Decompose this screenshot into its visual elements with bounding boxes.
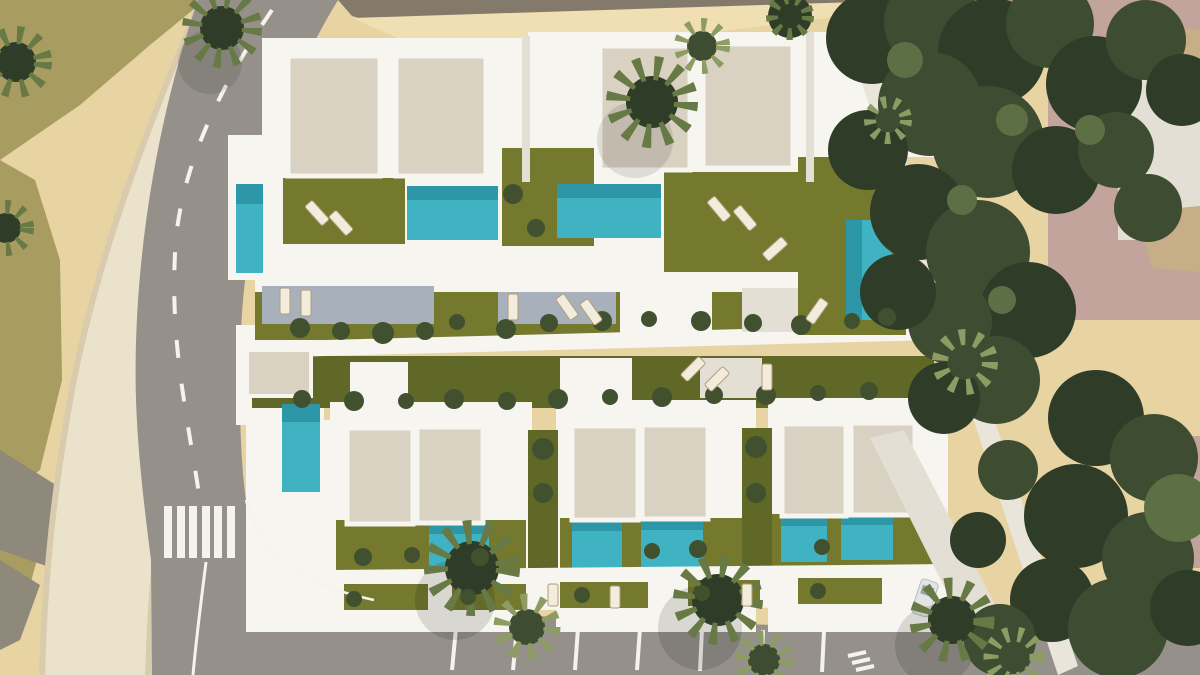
shrub xyxy=(372,322,394,344)
shrub xyxy=(744,314,762,332)
shrub xyxy=(844,313,860,329)
shrub xyxy=(746,483,766,503)
shrub xyxy=(694,585,710,601)
sun-lounger xyxy=(301,290,311,316)
shrub xyxy=(532,438,554,460)
shrub xyxy=(498,392,516,410)
sun-lounger xyxy=(762,364,772,390)
tree-canopy xyxy=(1068,578,1168,675)
shrub xyxy=(346,591,362,607)
pool-villa-c-deep xyxy=(846,220,862,320)
tree-canopy xyxy=(1114,174,1182,242)
shrub xyxy=(496,319,516,339)
shrub xyxy=(548,389,568,409)
party-wall-ab xyxy=(522,36,530,182)
shrub xyxy=(860,382,878,400)
sun-lounger xyxy=(548,584,558,606)
palm-core xyxy=(445,541,499,595)
shrub xyxy=(293,390,311,408)
garden-strip-3 xyxy=(560,582,648,608)
crosswalk-stripe-2 xyxy=(177,506,185,558)
shrub xyxy=(691,311,711,331)
shrub xyxy=(344,391,364,411)
shrub xyxy=(398,393,414,409)
parking-line-7 xyxy=(822,631,824,672)
roof-panel-1a xyxy=(347,428,413,524)
terrace-square-4 xyxy=(560,358,632,400)
render-viewport xyxy=(0,0,1200,675)
tree-canopy-highlight xyxy=(887,42,923,78)
party-wall-bc xyxy=(806,32,814,182)
tree-canopy-highlight xyxy=(947,185,977,215)
crosswalk-stripe-4 xyxy=(202,506,210,558)
annex-roof-panel xyxy=(247,350,311,396)
shrub xyxy=(444,389,464,409)
shrub xyxy=(332,322,350,340)
shrub xyxy=(689,540,707,558)
shrub xyxy=(533,483,553,503)
shrub xyxy=(460,589,476,605)
roof-panel-2b xyxy=(642,425,708,519)
pool-left-partial-deep xyxy=(236,184,263,204)
shrub xyxy=(574,587,590,603)
pool-villa-b-deep xyxy=(557,184,661,198)
shrub xyxy=(471,548,489,566)
shrub xyxy=(449,314,465,330)
shrub xyxy=(527,219,545,237)
shrub xyxy=(878,308,896,326)
shrub xyxy=(404,547,420,563)
shrub xyxy=(810,385,826,401)
sun-lounger xyxy=(280,288,290,314)
shrub xyxy=(354,548,372,566)
shrub xyxy=(290,318,310,338)
shrub xyxy=(503,184,523,204)
tree-canopy-highlight xyxy=(1075,115,1105,145)
shrub xyxy=(641,311,657,327)
shrub xyxy=(745,436,767,458)
crosswalk-stripe-5 xyxy=(214,506,222,558)
tree-canopy-highlight xyxy=(988,286,1016,314)
roof-panel-1b xyxy=(417,427,483,523)
tree-canopy xyxy=(978,440,1038,500)
scene-svg xyxy=(0,0,1200,675)
sun-lounger xyxy=(742,584,752,606)
shrub xyxy=(810,583,826,599)
pool-villa-a-deep xyxy=(407,186,498,200)
sun-lounger xyxy=(508,294,518,320)
shrub xyxy=(644,543,660,559)
crosswalk-stripe-1 xyxy=(164,506,172,558)
tree-canopy xyxy=(860,254,936,330)
roof-panel-a1 xyxy=(288,56,380,176)
shrub xyxy=(416,322,434,340)
roof-panel-3a xyxy=(782,424,846,516)
roof-panel-a2 xyxy=(396,56,486,176)
shrub xyxy=(814,539,830,555)
crosswalk-stripe-3 xyxy=(189,506,197,558)
shrub xyxy=(652,387,672,407)
roof-panel-2a xyxy=(572,426,638,520)
lawn-villa-b xyxy=(664,172,800,272)
sun-lounger xyxy=(610,586,620,608)
shrub xyxy=(602,389,618,405)
shrub xyxy=(540,314,558,332)
tree-canopy-highlight xyxy=(996,104,1028,136)
tree-canopy xyxy=(950,512,1006,568)
crosswalk-stripe-6 xyxy=(227,506,235,558)
